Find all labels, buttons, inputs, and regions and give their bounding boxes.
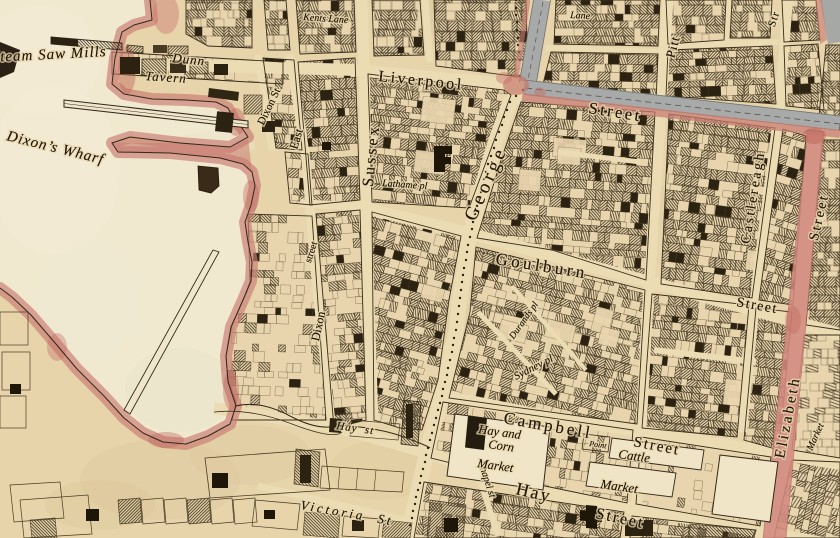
svg-text:Lane: Lane bbox=[569, 10, 591, 22]
svg-text:Tavern: Tavern bbox=[145, 68, 188, 86]
